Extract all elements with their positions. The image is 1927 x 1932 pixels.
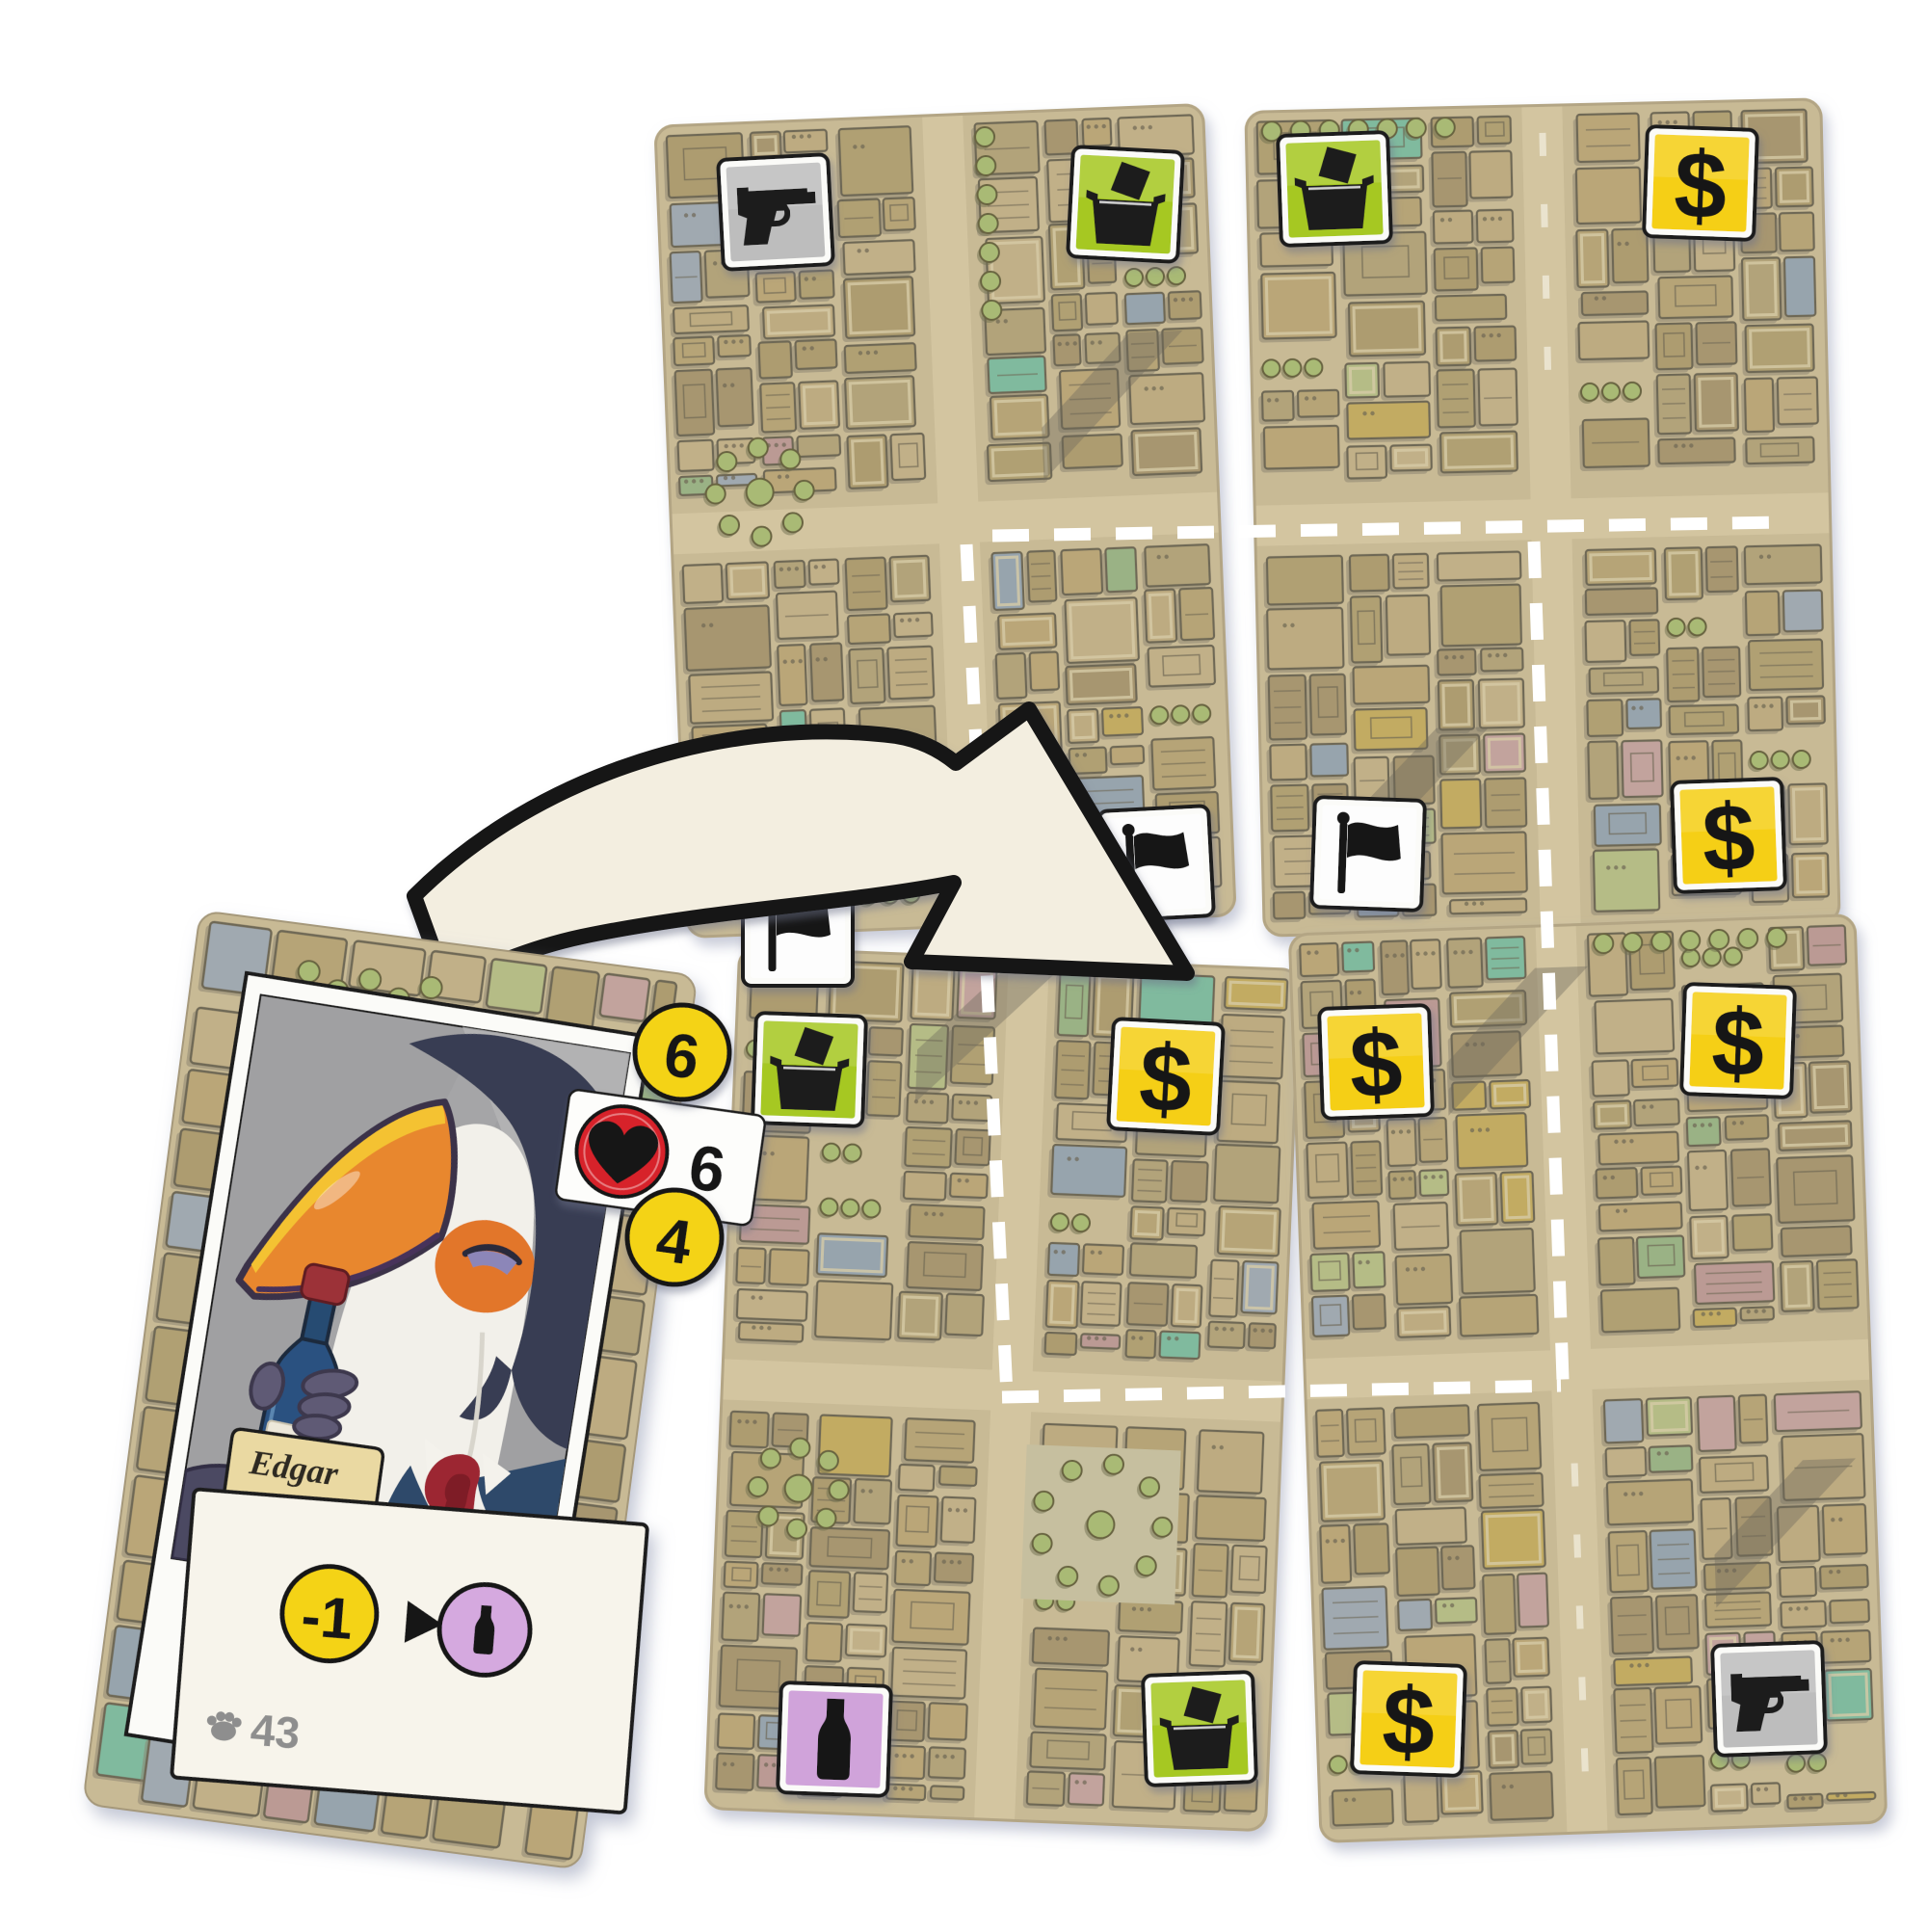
svg-text:$: $ — [1710, 989, 1766, 1097]
svg-text:$: $ — [1673, 131, 1729, 239]
svg-text:$: $ — [1348, 1010, 1404, 1118]
svg-text:$: $ — [1701, 783, 1756, 891]
svg-text:43: 43 — [249, 1705, 302, 1759]
svg-text:$: $ — [1381, 1667, 1437, 1775]
svg-text:-1: -1 — [299, 1583, 355, 1652]
svg-text:$: $ — [1137, 1024, 1195, 1133]
